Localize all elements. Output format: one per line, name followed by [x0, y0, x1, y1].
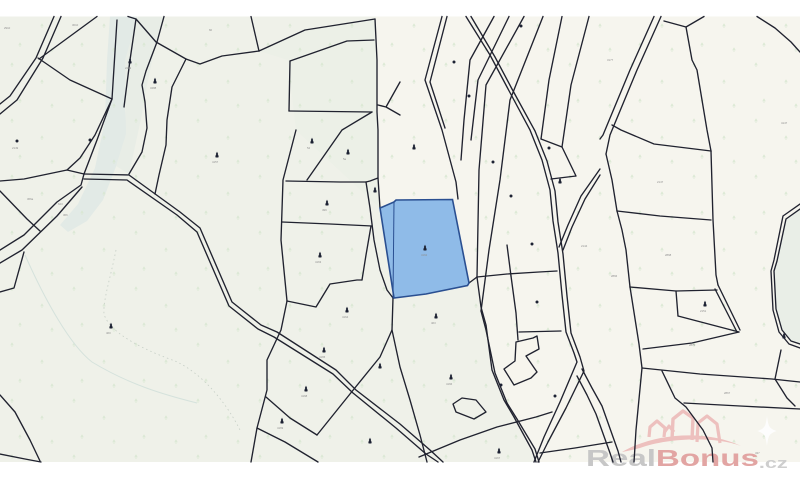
svg-text:4166: 4166: [446, 382, 453, 386]
svg-text:60: 60: [209, 28, 213, 32]
svg-text:2867: 2867: [724, 391, 731, 395]
svg-text:4157: 4157: [212, 160, 219, 164]
svg-text:366: 366: [63, 213, 68, 217]
svg-text:4169: 4169: [277, 426, 284, 430]
svg-text:2910: 2910: [4, 26, 11, 30]
svg-text:460: 460: [106, 331, 111, 335]
svg-text:4168: 4168: [301, 394, 308, 398]
svg-text:623: 623: [58, 202, 63, 206]
svg-text:2144: 2144: [581, 244, 588, 248]
svg-text:5a: 5a: [343, 157, 347, 161]
svg-text:3488: 3488: [150, 86, 157, 90]
svg-text:2149: 2149: [12, 146, 19, 150]
svg-text:4163: 4163: [315, 260, 322, 264]
svg-text:437: 437: [755, 451, 760, 455]
svg-text:366a: 366a: [27, 197, 34, 201]
svg-text:4147: 4147: [781, 121, 788, 125]
svg-text:54: 54: [307, 146, 311, 150]
svg-text:2439: 2439: [125, 66, 132, 70]
svg-text:4164: 4164: [342, 315, 349, 319]
svg-text:3177: 3177: [607, 58, 614, 62]
svg-text:2147: 2147: [657, 180, 664, 184]
svg-text:3010: 3010: [72, 23, 79, 27]
svg-text:2870: 2870: [689, 343, 696, 347]
svg-text:499: 499: [322, 208, 327, 212]
svg-text:4167: 4167: [494, 456, 501, 460]
svg-text:4165: 4165: [319, 355, 326, 359]
svg-text:2868: 2868: [665, 253, 672, 257]
svg-text:2151: 2151: [700, 309, 707, 313]
svg-text:2866: 2866: [611, 274, 618, 278]
svg-text:4162: 4162: [421, 253, 428, 257]
svg-text:RealBonus.cz: RealBonus.cz: [586, 446, 788, 472]
svg-text:463: 463: [431, 321, 436, 325]
